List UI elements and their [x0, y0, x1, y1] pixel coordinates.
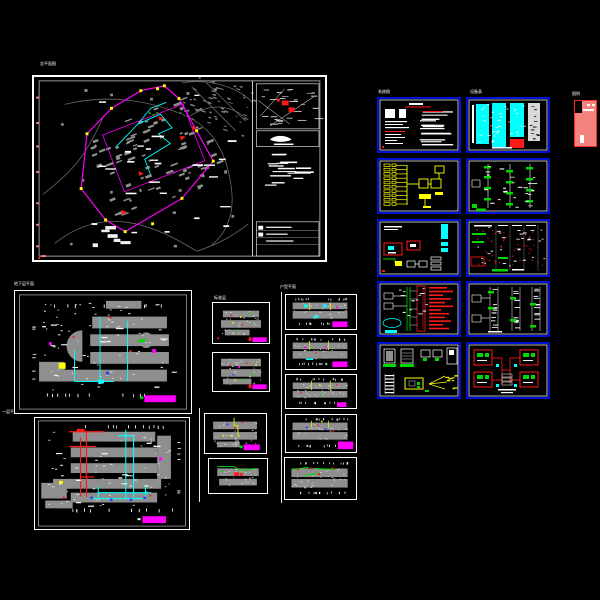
cyan-device: [98, 380, 104, 384]
yellow-labels: [419, 192, 443, 208]
grid-ticks-bottom: [300, 491, 345, 494]
footer-text: [512, 269, 524, 271]
title-stamp: [332, 321, 347, 327]
cad-model-space: 总平面图 地下层平面 一层平面 标准层 户型平面 系统图 设备表 图例: [0, 0, 600, 600]
legend-label: 图例: [572, 91, 580, 96]
first-floor-plan-drawing: [35, 418, 189, 529]
magenta-device: [336, 306, 338, 308]
yellow-room: [59, 363, 66, 369]
magenta-device: [238, 366, 240, 368]
yellow-device: [319, 384, 321, 386]
green-taps: [472, 166, 533, 211]
sheet-first-floor-plan[interactable]: [34, 417, 190, 530]
basement-plan-drawing: [15, 291, 191, 413]
legend-mark: [592, 104, 595, 106]
yellow-box-detail: [405, 378, 423, 389]
sheet-small-plan-1[interactable]: [212, 302, 270, 344]
label-text: [410, 244, 416, 247]
building-mass: [221, 311, 261, 336]
key-map-site-marker: [277, 99, 295, 113]
sheet-unit-distribution[interactable]: [466, 342, 550, 399]
small-plan-1-drawing: [213, 303, 269, 343]
yellow-leaders: [429, 376, 447, 389]
cell-text: [478, 227, 546, 266]
legend-notch: [575, 101, 582, 113]
legend-mark: [583, 109, 594, 111]
basement-plan-label: 地下层平面: [14, 281, 34, 286]
detail-4: [447, 348, 457, 364]
grid-col1-label: 系统图: [378, 89, 390, 94]
group-divider: [281, 292, 282, 503]
left-text-blocks: [385, 109, 409, 144]
red-annotation-text: [429, 287, 453, 329]
sheet-small-plan-3[interactable]: [204, 413, 267, 454]
grid-ticks-top: [296, 298, 347, 301]
fire-riser-drawing: [379, 283, 459, 335]
green-loads: [477, 353, 535, 379]
unit-plan-2-drawing: [286, 335, 356, 369]
left-column: [472, 105, 474, 143]
general-notes-text: [265, 154, 314, 186]
cyan-run: [306, 359, 314, 360]
corner-mark: [38, 257, 40, 259]
site-buildings: [84, 92, 230, 221]
panel-boxes: [472, 295, 490, 322]
sheet-site-plan[interactable]: [32, 75, 327, 262]
small-plan-2-drawing: [213, 353, 269, 391]
right-text-lines: [420, 111, 453, 145]
cyan-label: [385, 330, 397, 333]
magenta-device: [159, 457, 162, 460]
grid-ticks-top: [306, 418, 348, 421]
grid-ticks-top: [300, 462, 348, 465]
title-stamp: [138, 516, 166, 523]
spec-notes-drawing: [379, 99, 459, 151]
cyan-cloud: [383, 319, 401, 328]
vignette-caption: [274, 144, 294, 145]
inner-frame: [469, 345, 547, 396]
yellow-unit: [395, 261, 402, 266]
red-shaft: [417, 286, 425, 331]
small-plan-4-drawing: [209, 459, 267, 493]
device-table-drawing: [468, 99, 548, 151]
source-box: [472, 180, 480, 187]
sheet-riser-green[interactable]: [466, 158, 550, 214]
detail-3: [421, 350, 442, 361]
footer-text: [492, 147, 512, 149]
grid-col2-label: 设备表: [470, 89, 482, 94]
title-underline: [405, 107, 431, 108]
detail-2: [400, 349, 414, 367]
grid-ticks-top: [297, 338, 345, 341]
sheet-device-table[interactable]: [466, 97, 550, 153]
cyan-blocks: [441, 224, 448, 252]
rungs-col2: [513, 291, 520, 328]
small-plans-label: 标准层: [214, 295, 226, 300]
tap-lines: [410, 291, 417, 325]
unit-mass: [291, 468, 347, 487]
site-plan-drawing: [34, 77, 325, 260]
unit-mass: [293, 303, 348, 319]
white-units: [407, 257, 441, 270]
green-tag: [425, 390, 429, 392]
caption-text: [498, 389, 516, 393]
title-stamp: [240, 444, 260, 450]
unit-plans-label: 户型平面: [280, 284, 296, 289]
unit-distribution-drawing: [468, 344, 548, 397]
grid-ticks-top: [296, 378, 342, 381]
title-stamp: [337, 402, 346, 407]
meter-stack: [502, 374, 512, 385]
yellow-device: [59, 481, 63, 484]
ladder-detail: [385, 374, 394, 394]
sheet-unit-plan-5[interactable]: [284, 457, 357, 500]
sheet-small-plan-2[interactable]: [212, 352, 270, 392]
red-note-line: [423, 111, 443, 112]
title-stamp: [249, 337, 267, 342]
margin-ticks: [36, 97, 46, 257]
red-block: [510, 139, 524, 148]
branch-breakers: [384, 164, 407, 205]
legend-mark: [587, 104, 590, 106]
footer-text: [488, 331, 502, 333]
small-plan-3-drawing: [205, 414, 266, 453]
blue-device: [232, 374, 234, 376]
building-mass: [39, 301, 169, 382]
title-stamp: [140, 395, 175, 402]
vignette-graphic: [270, 136, 292, 142]
legend-swatch[interactable]: [574, 100, 597, 147]
flow-arrows: [121, 116, 196, 215]
sheet-detail-red-cyan[interactable]: [377, 219, 461, 277]
group-divider: [199, 408, 200, 502]
building-mass: [221, 359, 261, 385]
legend-mark: [580, 135, 584, 143]
unit-mass: [293, 343, 348, 359]
sheet-points-table[interactable]: [466, 219, 550, 277]
riser-white-drawing: [468, 283, 548, 335]
sheet-title-text: [409, 103, 423, 105]
yellow-device: [321, 421, 323, 423]
sheet-spec-notes[interactable]: [377, 97, 461, 153]
green-device: [321, 394, 323, 396]
sheet-basement-plan[interactable]: [14, 290, 192, 414]
unit-mass: [293, 423, 348, 440]
green-bus: [407, 287, 410, 331]
green-feed: [383, 259, 395, 263]
red-connectors: [492, 358, 520, 384]
title-stamp: [338, 442, 353, 450]
building-mass: [217, 468, 259, 485]
distribution-system-drawing: [379, 160, 459, 212]
green-device: [138, 339, 145, 342]
corner-mark: [382, 270, 385, 272]
legend-notes-lower-left: [92, 223, 131, 247]
site-boundary[interactable]: [81, 86, 213, 232]
riser-labels: [399, 288, 428, 316]
sheet-unit-plan-4[interactable]: [285, 414, 357, 453]
red-device: [315, 352, 317, 354]
sheet-riser-white[interactable]: [466, 281, 550, 337]
magenta-device: [49, 342, 52, 345]
sheet-unit-plan-1[interactable]: [285, 294, 357, 330]
notes-text: [384, 226, 402, 230]
bus-and-main: [407, 165, 444, 206]
magenta-device: [152, 349, 156, 353]
unit-plan-4-drawing: [286, 415, 356, 452]
sheet-equipment-details[interactable]: [377, 342, 461, 399]
yellow-leader-text: [445, 375, 458, 389]
unit-plan-1-drawing: [286, 295, 356, 329]
equipment-details-drawing: [379, 344, 459, 397]
red-note-line: [385, 131, 405, 132]
sheet-small-plan-4[interactable]: [208, 458, 268, 494]
detail-1: [383, 349, 396, 367]
label-text: [388, 252, 396, 254]
detail-red-cyan-drawing: [379, 221, 459, 275]
table-rules: [496, 225, 538, 271]
blue-device: [226, 424, 228, 426]
red-panel: [77, 429, 85, 432]
cyan-feeders: [115, 102, 172, 174]
title-block-rows: [256, 226, 319, 245]
key-map-streets: [262, 89, 324, 124]
sheet-distribution-system[interactable]: [377, 158, 461, 214]
sheet-unit-plan-3[interactable]: [285, 374, 357, 409]
cyan-insert: [388, 246, 394, 250]
unit-plan-3-drawing: [286, 375, 356, 408]
inner-frame: [39, 81, 320, 256]
blue-device: [106, 372, 109, 375]
title-stamp: [249, 384, 267, 389]
riser-green-drawing: [468, 160, 548, 212]
sheet-fire-riser[interactable]: [377, 281, 461, 337]
points-table-drawing: [468, 221, 548, 275]
site-plan-label: 总平面图: [40, 61, 56, 66]
header-text: [474, 225, 536, 227]
unit-plan-5-drawing: [285, 458, 356, 499]
sheet-unit-plan-2[interactable]: [285, 334, 357, 370]
corner-mark: [382, 146, 384, 148]
title-stamp: [332, 361, 347, 367]
green-device: [221, 470, 223, 472]
cyan-terminals: [496, 364, 517, 387]
